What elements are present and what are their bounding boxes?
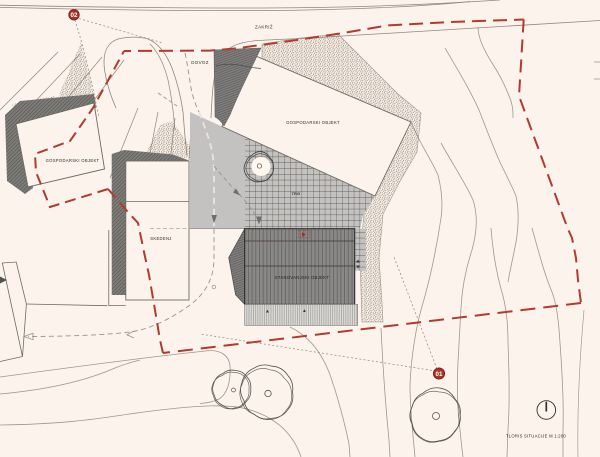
svg-text:02: 02 (71, 12, 78, 19)
svg-text:ZAKRIŽ: ZAKRIŽ (255, 24, 273, 29)
svg-text:01: 01 (436, 371, 443, 378)
svg-text:DOVOZ: DOVOZ (191, 60, 209, 65)
svg-text:STANOVANJSKI OBJEKT: STANOVANJSKI OBJEKT (275, 275, 330, 280)
svg-text:TLORIS SITUACIJE M 1:200: TLORIS SITUACIJE M 1:200 (506, 433, 566, 438)
svg-text:SKEDENJ: SKEDENJ (150, 236, 171, 241)
svg-text:GOSPODARSKI OBJEKT: GOSPODARSKI OBJEKT (46, 158, 100, 163)
svg-text:GOSPODARSKI OBJEKT: GOSPODARSKI OBJEKT (286, 120, 340, 125)
svg-text:TRG: TRG (292, 191, 301, 196)
